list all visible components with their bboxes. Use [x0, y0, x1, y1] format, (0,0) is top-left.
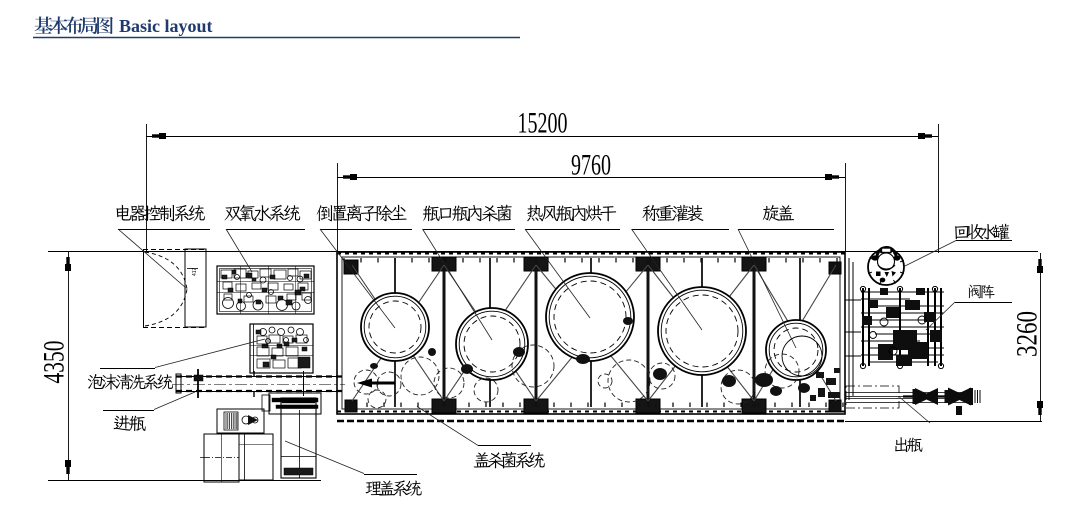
- svg-text:4350: 4350: [38, 341, 71, 384]
- svg-text:3260: 3260: [1011, 311, 1044, 357]
- svg-text:Basic layout: Basic layout: [119, 16, 213, 36]
- svg-text:9760: 9760: [571, 149, 611, 182]
- svg-text:15200: 15200: [518, 107, 568, 140]
- svg-text:417: 417: [192, 267, 198, 276]
